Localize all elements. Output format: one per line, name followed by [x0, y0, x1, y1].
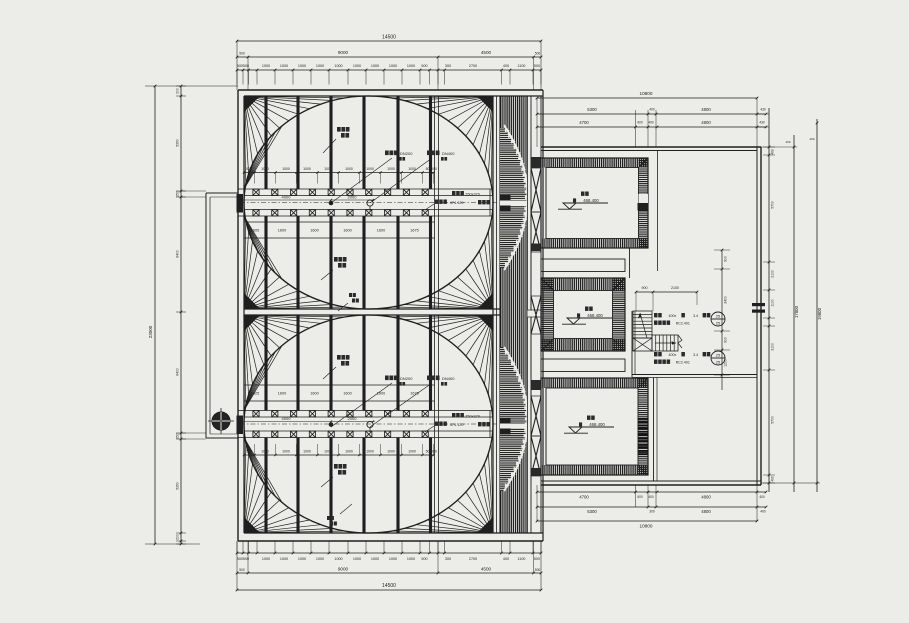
- svg-text:500: 500: [239, 52, 245, 56]
- svg-text:3.4: 3.4: [693, 314, 698, 318]
- svg-text:1675: 1675: [410, 229, 418, 233]
- svg-text:500: 500: [243, 64, 249, 68]
- svg-text:2700: 2700: [469, 557, 477, 561]
- svg-text:1000: 1000: [298, 557, 306, 561]
- svg-text:900: 900: [724, 256, 728, 262]
- svg-text:1000: 1000: [366, 450, 374, 454]
- svg-text:1000: 1000: [345, 167, 353, 171]
- svg-text:1600: 1600: [310, 229, 318, 233]
- svg-text:500: 500: [426, 167, 432, 171]
- svg-text:468.400: 468.400: [583, 198, 599, 203]
- svg-text:474.120: 474.120: [450, 201, 464, 205]
- svg-text:1200: 1200: [724, 359, 728, 367]
- svg-text:RC2.401: RC2.401: [676, 322, 690, 326]
- svg-text:14500: 14500: [382, 583, 396, 589]
- svg-text:4700: 4700: [579, 120, 589, 125]
- svg-text:2100: 2100: [771, 270, 775, 278]
- svg-text:10800: 10800: [639, 91, 652, 96]
- svg-text:DN400: DN400: [442, 151, 455, 156]
- svg-text:5300: 5300: [587, 107, 597, 112]
- svg-text:1000: 1000: [334, 557, 342, 561]
- svg-text:1000: 1000: [280, 557, 288, 561]
- svg-text:3.4: 3.4: [693, 353, 698, 357]
- svg-text:500: 500: [534, 64, 540, 68]
- svg-text:1000: 1000: [387, 450, 395, 454]
- svg-text:2000: 2000: [348, 416, 358, 421]
- svg-text:1000: 1000: [324, 450, 332, 454]
- svg-text:DN400: DN400: [442, 376, 455, 381]
- svg-text:500: 500: [426, 450, 432, 454]
- svg-text:250: 250: [176, 191, 180, 197]
- svg-text:400: 400: [771, 476, 775, 482]
- svg-text:25: 25: [716, 360, 721, 365]
- svg-text:468.400: 468.400: [587, 313, 603, 318]
- svg-text:400: 400: [759, 495, 765, 499]
- svg-text:1000: 1000: [261, 167, 269, 171]
- svg-text:5700: 5700: [771, 201, 775, 209]
- svg-text:1000: 1000: [261, 450, 269, 454]
- svg-text:250x370: 250x370: [465, 193, 480, 197]
- svg-text:1000: 1000: [303, 450, 311, 454]
- svg-text:430: 430: [760, 108, 766, 112]
- svg-text:500: 500: [246, 450, 252, 454]
- svg-text:4700: 4700: [579, 495, 589, 500]
- svg-text:4800: 4800: [701, 495, 711, 500]
- svg-text:1600: 1600: [278, 392, 286, 396]
- svg-text:500: 500: [535, 568, 541, 572]
- svg-text:430: 430: [759, 121, 765, 125]
- svg-text:23000: 23000: [148, 325, 153, 338]
- svg-text:6400: 6400: [176, 250, 180, 258]
- svg-text:1600: 1600: [343, 392, 351, 396]
- svg-text:5350: 5350: [176, 482, 180, 490]
- svg-text:14500: 14500: [382, 35, 396, 41]
- svg-text:1600: 1600: [343, 229, 351, 233]
- svg-text:1000: 1000: [262, 557, 270, 561]
- svg-text:1000: 1000: [298, 64, 306, 68]
- svg-text:400x: 400x: [669, 353, 677, 357]
- svg-text:300: 300: [445, 557, 451, 561]
- svg-text:500: 500: [239, 568, 245, 572]
- svg-text:1600: 1600: [310, 392, 318, 396]
- svg-text:25: 25: [716, 353, 721, 358]
- svg-text:1000: 1000: [407, 557, 415, 561]
- svg-text:1000: 1000: [366, 167, 374, 171]
- svg-text:1100: 1100: [771, 299, 775, 306]
- svg-text:400: 400: [649, 108, 655, 112]
- svg-text:1625: 1625: [251, 392, 259, 396]
- svg-text:500: 500: [421, 557, 427, 561]
- svg-text:2100: 2100: [671, 286, 679, 290]
- svg-text:4800: 4800: [701, 107, 711, 112]
- svg-text:200: 200: [176, 534, 180, 540]
- svg-text:500: 500: [534, 557, 540, 561]
- svg-text:400: 400: [760, 510, 766, 514]
- svg-text:9000: 9000: [338, 50, 349, 55]
- svg-text:1100: 1100: [518, 557, 526, 561]
- svg-text:5700: 5700: [771, 416, 775, 424]
- svg-text:1000: 1000: [334, 64, 342, 68]
- svg-text:1000: 1000: [353, 64, 361, 68]
- svg-text:4500: 4500: [481, 50, 492, 55]
- svg-text:4000: 4000: [282, 416, 292, 421]
- svg-text:400x: 400x: [669, 314, 677, 318]
- svg-text:1100: 1100: [518, 64, 526, 68]
- svg-text:1000: 1000: [387, 167, 395, 171]
- svg-text:1000: 1000: [282, 167, 290, 171]
- svg-text:1000: 1000: [303, 167, 311, 171]
- svg-text:5350: 5350: [176, 139, 180, 147]
- svg-text:10800: 10800: [639, 524, 652, 529]
- svg-text:500: 500: [535, 52, 541, 56]
- svg-text:1000: 1000: [371, 557, 379, 561]
- svg-text:250: 250: [176, 433, 180, 439]
- svg-text:200: 200: [176, 88, 180, 94]
- svg-text:3100: 3100: [771, 343, 775, 351]
- svg-text:500: 500: [421, 64, 427, 68]
- svg-text:1600: 1600: [377, 229, 385, 233]
- svg-text:1000: 1000: [282, 450, 290, 454]
- svg-text:1600: 1600: [278, 229, 286, 233]
- svg-text:1605: 1605: [251, 229, 259, 233]
- svg-text:1000: 1000: [407, 64, 415, 68]
- svg-text:1000: 1000: [262, 64, 270, 68]
- svg-text:1000: 1000: [316, 64, 324, 68]
- svg-text:400: 400: [648, 495, 654, 499]
- svg-text:1000: 1000: [408, 450, 416, 454]
- svg-text:468.400: 468.400: [589, 422, 605, 427]
- svg-text:400: 400: [503, 64, 509, 68]
- svg-text:6400: 6400: [176, 368, 180, 376]
- svg-text:3400: 3400: [724, 296, 728, 304]
- svg-text:25: 25: [716, 314, 721, 319]
- svg-text:4000: 4000: [282, 195, 292, 200]
- svg-text:2700: 2700: [469, 64, 477, 68]
- svg-text:500: 500: [246, 167, 252, 171]
- svg-text:1000: 1000: [316, 557, 324, 561]
- svg-text:5300: 5300: [587, 509, 597, 514]
- svg-text:DN200: DN200: [400, 151, 413, 156]
- svg-text:250x370: 250x370: [465, 415, 480, 419]
- svg-text:17800: 17800: [794, 305, 799, 318]
- svg-text:474.120: 474.120: [450, 423, 464, 427]
- svg-text:DN200: DN200: [400, 376, 413, 381]
- svg-text:25: 25: [716, 321, 721, 326]
- svg-text:19800: 19800: [817, 307, 822, 320]
- svg-text:600: 600: [637, 495, 643, 499]
- svg-text:1000: 1000: [389, 64, 397, 68]
- svg-text:9000: 9000: [338, 567, 349, 572]
- svg-text:4800: 4800: [701, 120, 711, 125]
- svg-text:400: 400: [648, 121, 654, 125]
- svg-text:400: 400: [785, 140, 790, 144]
- svg-text:900: 900: [724, 337, 728, 343]
- svg-text:1000: 1000: [345, 450, 353, 454]
- svg-text:900: 900: [642, 286, 648, 290]
- svg-text:400: 400: [771, 149, 775, 155]
- svg-text:1000: 1000: [371, 64, 379, 68]
- svg-text:1600: 1600: [377, 392, 385, 396]
- svg-text:300: 300: [445, 64, 451, 68]
- svg-text:600: 600: [637, 121, 643, 125]
- svg-text:1000: 1000: [280, 64, 288, 68]
- svg-text:400: 400: [809, 137, 814, 141]
- svg-text:2000: 2000: [348, 195, 358, 200]
- svg-text:4500: 4500: [481, 567, 492, 572]
- svg-text:4800: 4800: [701, 509, 711, 514]
- svg-text:1000: 1000: [324, 167, 332, 171]
- svg-text:400: 400: [503, 557, 509, 561]
- svg-text:300: 300: [649, 510, 655, 514]
- svg-text:1000: 1000: [389, 557, 397, 561]
- svg-text:RC2.401: RC2.401: [676, 361, 690, 365]
- svg-text:1000: 1000: [353, 557, 361, 561]
